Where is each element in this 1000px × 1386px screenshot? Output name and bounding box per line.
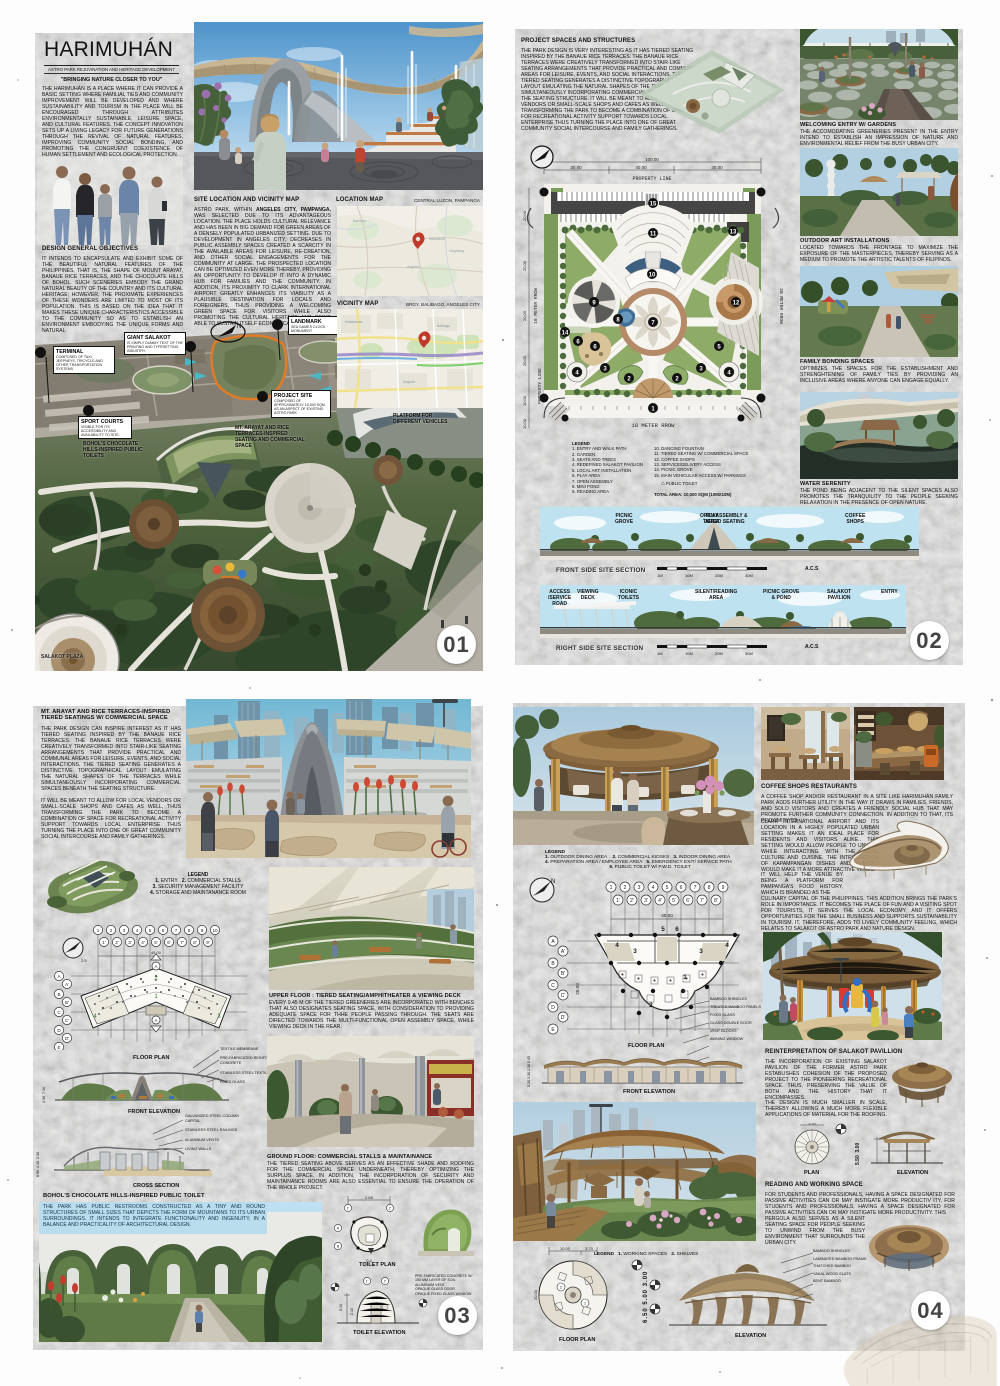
svg-text:3: 3 [123,928,126,933]
svg-text:3.30: 3.30 [808,1123,815,1126]
svg-text:Magalang: Magalang [449,249,464,253]
svg-text:10: 10 [649,273,656,279]
svg-text:20M: 20M [715,573,723,578]
svg-text:10.00: 10.00 [522,418,527,429]
svg-text:4': 4' [658,898,662,904]
svg-text:30M: 30M [745,651,753,656]
svg-text:1M: 1M [657,651,663,656]
svg-text:20.00: 20.00 [533,1289,538,1300]
svg-text:Angeles: Angeles [403,380,416,384]
svg-text:A: A [155,964,158,969]
svg-text:30M: 30M [745,573,753,578]
svg-text:25.00: 25.00 [575,983,580,995]
svg-text:9: 9 [201,928,204,933]
svg-text:C: C [551,983,555,989]
svg-text:40.00: 40.00 [661,913,673,918]
svg-text:Angeles: Angeles [407,265,420,269]
svg-text:8: 8 [188,928,191,933]
svg-text:20.00: 20.00 [522,260,527,271]
svg-text:B: B [57,992,60,997]
svg-text:D': D' [65,1036,69,1041]
svg-text:B': B' [65,1000,69,1005]
svg-text:6: 6 [162,928,165,933]
svg-text:30.00: 30.00 [711,165,723,170]
svg-text:C': C' [561,993,566,999]
svg-text:11: 11 [650,232,657,238]
svg-text:9: 9 [722,885,725,891]
svg-text:1: 1 [610,885,613,891]
svg-text:10: 10 [212,928,218,933]
svg-text:7': 7' [700,898,704,904]
svg-text:A': A' [561,949,565,955]
svg-text:2.65: 2.65 [365,1195,374,1200]
svg-text:100.00: 100.00 [645,157,659,162]
svg-text:13: 13 [730,230,737,236]
svg-text:2': 2' [389,1206,392,1210]
svg-text:2: 2 [649,1002,653,1009]
svg-text:Balibago: Balibago [437,324,450,328]
svg-text:9': 9' [206,940,210,945]
svg-text:7: 7 [694,885,697,891]
svg-text:20 METER RROW: 20 METER RROW [778,288,784,324]
svg-text:1': 1' [102,940,106,945]
svg-text:1': 1' [347,1206,350,1210]
svg-text:4': 4' [141,940,145,945]
svg-text:1': 1' [616,898,620,904]
svg-text:8': 8' [193,940,197,945]
svg-text:A': A' [65,982,69,987]
svg-text:6: 6 [680,885,683,891]
svg-text:5': 5' [154,940,158,945]
svg-text:18 METER RROW: 18 METER RROW [632,422,676,429]
svg-text:D: D [551,1005,555,1011]
svg-text:1M: 1M [657,573,663,578]
svg-text:6': 6' [686,898,690,904]
svg-text:2: 2 [110,928,113,933]
svg-text:6': 6' [167,940,171,945]
svg-text:3': 3' [128,940,132,945]
svg-text:E: E [57,1045,60,1050]
svg-text:2.10: 2.10 [350,1308,354,1315]
svg-text:3: 3 [638,885,641,891]
svg-text:30.00: 30.00 [570,165,582,170]
svg-text:3.10: 3.10 [339,1304,343,1311]
svg-text:C': C' [65,1018,69,1023]
svg-text:5: 5 [661,926,665,933]
svg-text:5': 5' [672,898,676,904]
svg-text:20.00: 20.00 [522,310,527,321]
svg-text:16 METER RROW: 16 METER RROW [533,288,539,324]
svg-text:2: 2 [624,885,627,891]
svg-text:10.00: 10.00 [560,1246,571,1251]
svg-text:4: 4 [136,928,139,933]
svg-text:2': 2' [115,940,119,945]
svg-text:A: A [155,1018,158,1023]
svg-text:4: 4 [725,942,729,949]
svg-text:20.00: 20.00 [522,355,527,366]
svg-text:8': 8' [714,898,718,904]
svg-text:14: 14 [562,331,569,337]
svg-text:N: N [237,324,241,330]
svg-text:20M: 20M [715,651,723,656]
svg-text:12: 12 [733,301,740,307]
svg-text:1: 1 [97,928,100,933]
svg-text:7: 7 [175,928,178,933]
svg-text:Mabalacat: Mabalacat [429,237,445,241]
svg-text:Malabanias: Malabanias [345,320,363,324]
svg-text:3: 3 [633,948,637,955]
svg-text:3: 3 [699,948,703,955]
svg-text:10.00: 10.00 [522,395,527,406]
svg-text:10M: 10M [685,573,693,578]
svg-text:3': 3' [644,898,648,904]
svg-text:5: 5 [149,928,152,933]
svg-text:15: 15 [650,202,657,208]
svg-text:8: 8 [708,885,711,891]
svg-text:2': 2' [384,1279,387,1283]
svg-text:1: 1 [683,974,687,981]
svg-text:4: 4 [652,885,655,891]
svg-text:1': 1' [366,1279,369,1283]
svg-text:10M: 10M [685,651,693,656]
svg-text:D': D' [561,1015,566,1021]
svg-text:PROPERTY LINE: PROPERTY LINE [632,176,671,182]
svg-text:5: 5 [666,885,669,891]
svg-text:B': B' [561,971,565,977]
svg-text:2': 2' [630,898,634,904]
svg-text:4: 4 [615,942,619,949]
svg-text:7': 7' [180,940,184,945]
svg-text:40.00: 40.00 [635,165,647,170]
svg-text:6: 6 [675,926,679,933]
svg-text:3.75: 3.75 [585,1246,594,1251]
svg-text:Bamban: Bamban [353,219,366,223]
svg-text:20.00: 20.00 [522,210,527,221]
